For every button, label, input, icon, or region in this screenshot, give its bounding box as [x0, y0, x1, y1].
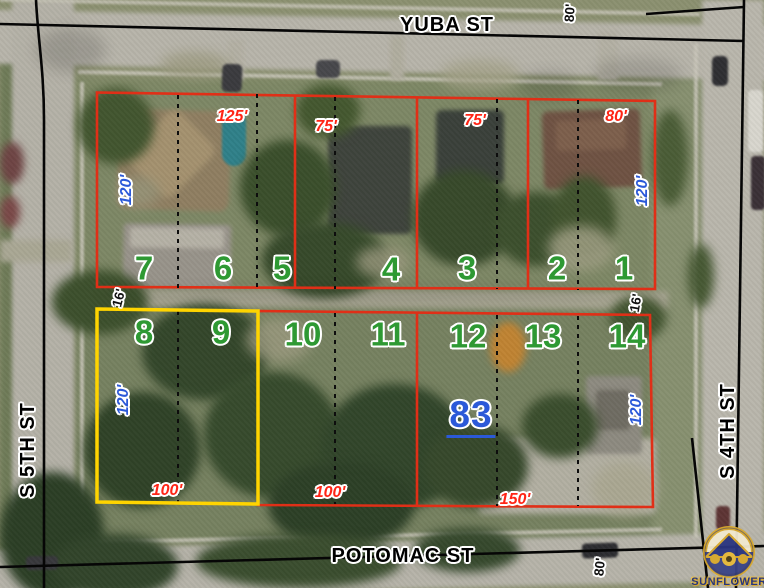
street-label-s4th: S 4TH ST: [718, 383, 738, 479]
street-label-potomac: POTOMAC ST: [332, 546, 475, 566]
lot-number-7: 7: [135, 252, 153, 285]
map-labels-layer: YUBA ST POTOMAC ST S 5TH ST S 4TH ST 83 …: [0, 0, 764, 588]
blue-dimension-label: 120': [629, 395, 645, 426]
lot-number-4: 4: [382, 253, 400, 286]
blue-dimension-label: 120': [119, 175, 135, 206]
highlighted-parcel-number: 83: [446, 396, 495, 438]
red-dimension-label: 125': [217, 109, 248, 125]
lot-number-3: 3: [458, 252, 476, 285]
lot-number-9: 9: [212, 316, 230, 349]
black-dimension-label: 16': [110, 288, 128, 309]
lot-number-13: 13: [525, 320, 562, 353]
red-dimension-label: 100': [152, 483, 183, 499]
black-dimension-label: 80': [563, 3, 578, 22]
blue-dimension-label: 120': [635, 176, 651, 207]
black-dimension-label: 16': [628, 293, 644, 313]
red-dimension-label: 80': [605, 109, 627, 125]
lot-number-1: 1: [615, 252, 633, 285]
sunflower-logo: SUNFLOWER: [690, 526, 764, 588]
street-label-yuba: YUBA ST: [400, 15, 494, 35]
sunflower-logo-emblem: [691, 526, 764, 578]
red-dimension-label: 150': [500, 492, 531, 508]
lot-number-5: 5: [273, 252, 291, 285]
lot-number-14: 14: [609, 320, 646, 353]
lot-number-6: 6: [214, 252, 232, 285]
plat-map: YUBA ST POTOMAC ST S 5TH ST S 4TH ST 83 …: [0, 0, 764, 588]
street-label-s5th: S 5TH ST: [18, 402, 38, 498]
sunflower-logo-wordmark: SUNFLOWER: [691, 576, 764, 588]
lot-number-10: 10: [285, 318, 322, 351]
black-dimension-label: 80': [592, 557, 607, 577]
lot-number-12: 12: [450, 320, 487, 353]
red-dimension-label: 75': [464, 113, 486, 129]
lot-number-2: 2: [548, 252, 566, 285]
red-dimension-label: 75': [315, 119, 337, 135]
red-dimension-label: 100': [315, 485, 346, 501]
lot-number-11: 11: [371, 318, 406, 351]
lot-number-8: 8: [135, 316, 153, 349]
blue-dimension-label: 120': [116, 385, 132, 416]
